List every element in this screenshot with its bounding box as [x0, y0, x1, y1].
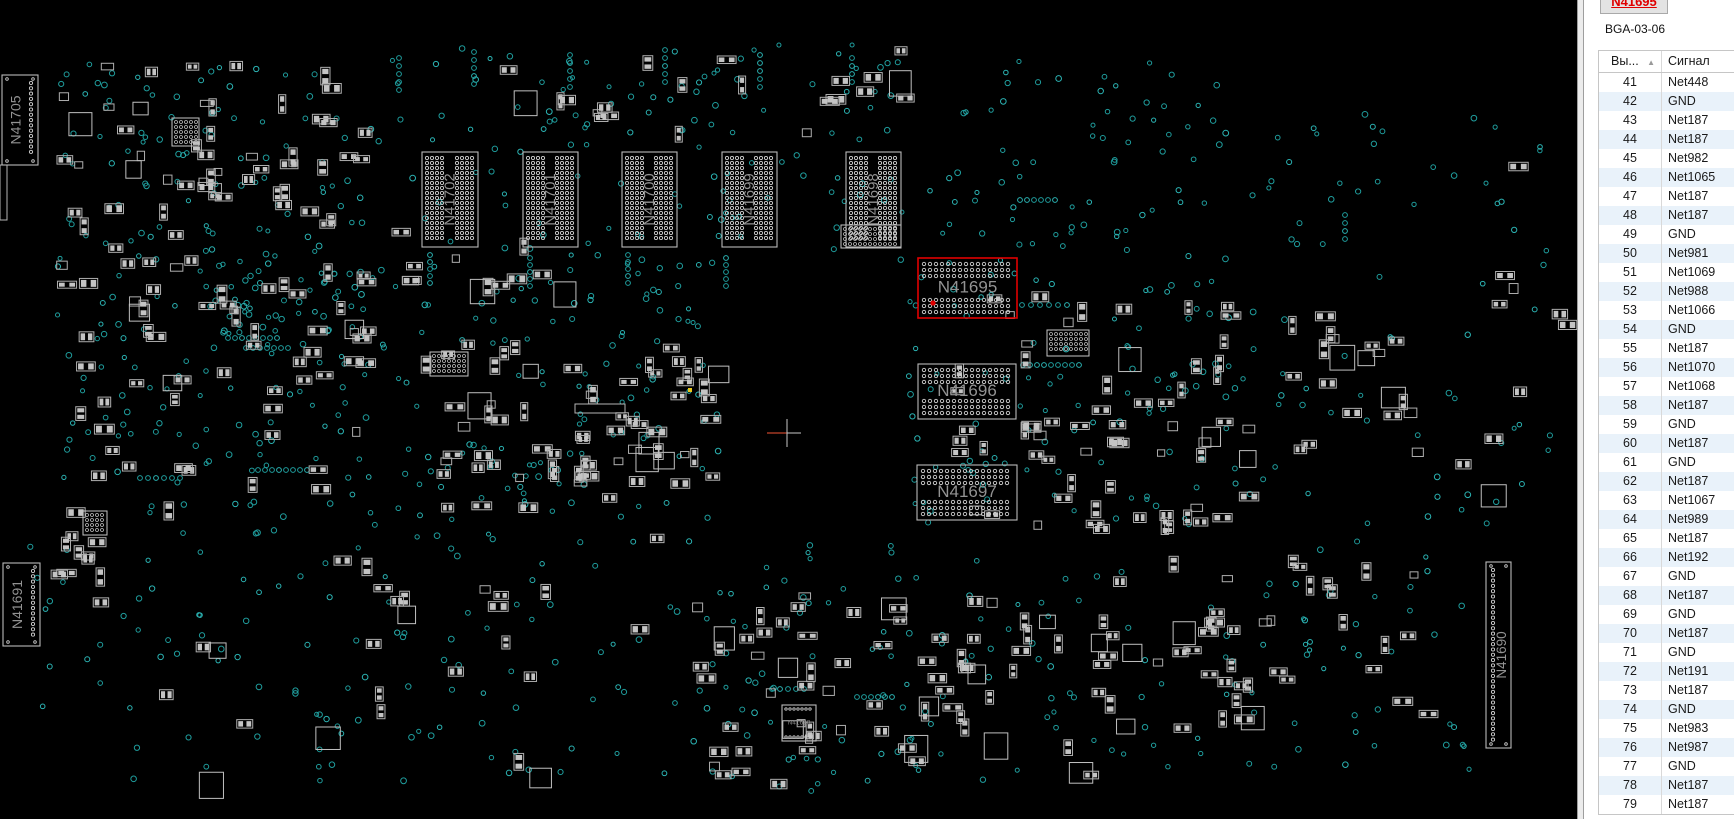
pin-row-73[interactable]: 73Net187 — [1599, 681, 1734, 700]
pin-row-59[interactable]: 59GND — [1599, 415, 1734, 434]
pin-row-66[interactable]: 66Net192 — [1599, 548, 1734, 567]
pin-row-79[interactable]: 79Net187 — [1599, 795, 1734, 814]
svg-text:N41705: N41705 — [8, 95, 24, 144]
board-canvas[interactable]: N41705N41702N41701N41700N41699N41698N416… — [0, 0, 1577, 819]
pin-number: 43 — [1599, 111, 1662, 130]
pin-row-56[interactable]: 56Net1070 — [1599, 358, 1734, 377]
yellow-via — [688, 388, 692, 392]
svg-text:N41697: N41697 — [937, 482, 997, 501]
pcb-render: N41705N41702N41701N41700N41699N41698N416… — [0, 0, 1577, 819]
signal-name: Net988 — [1662, 282, 1734, 301]
pin-number: 69 — [1599, 605, 1662, 624]
pin-number: 63 — [1599, 491, 1662, 510]
pin-number: 74 — [1599, 700, 1662, 719]
signal-name: Net187 — [1662, 206, 1734, 225]
pin-number: 79 — [1599, 795, 1662, 814]
pin-number: 42 — [1599, 92, 1662, 111]
signal-name: Net1067 — [1662, 491, 1734, 510]
passive-component-layer — [0, 47, 1577, 799]
pin-row-65[interactable]: 65Net187 — [1599, 529, 1734, 548]
pin-row-46[interactable]: 46Net1065 — [1599, 168, 1734, 187]
pin-number: 41 — [1599, 73, 1662, 92]
pin-number: 53 — [1599, 301, 1662, 320]
signal-name: Net187 — [1662, 529, 1734, 548]
signal-name: Net187 — [1662, 111, 1734, 130]
pin-number: 62 — [1599, 472, 1662, 491]
pin-row-53[interactable]: 53Net1066 — [1599, 301, 1734, 320]
signal-name: Net1066 — [1662, 301, 1734, 320]
pin-row-54[interactable]: 54GND — [1599, 320, 1734, 339]
pin-row-58[interactable]: 58Net187 — [1599, 396, 1734, 415]
component-N41701[interactable]: N41701 — [523, 152, 578, 247]
signal-name: Net187 — [1662, 624, 1734, 643]
signal-name: GND — [1662, 605, 1734, 624]
svg-text:N41699: N41699 — [741, 173, 758, 226]
signal-name: Net448 — [1662, 73, 1734, 92]
component-N41700[interactable]: N41700 — [622, 152, 677, 247]
pin-row-63[interactable]: 63Net1067 — [1599, 491, 1734, 510]
pin-row-48[interactable]: 48Net187 — [1599, 206, 1734, 225]
pin-number: 73 — [1599, 681, 1662, 700]
signal-name: Net987 — [1662, 738, 1734, 757]
component-N41705[interactable]: N41705 — [2, 75, 38, 165]
component-panel: N41695 BGA-03-06 Вы... ▲ Сигнал 41Net448… — [1584, 0, 1734, 819]
pin-number: 46 — [1599, 168, 1662, 187]
pin-number: 71 — [1599, 643, 1662, 662]
column-header-pin[interactable]: Вы... ▲ — [1599, 51, 1662, 72]
pin-table-header: Вы... ▲ Сигнал — [1599, 51, 1734, 73]
pin-row-45[interactable]: 45Net982 — [1599, 149, 1734, 168]
pin-number: 55 — [1599, 339, 1662, 358]
pin-column-label: Вы... — [1611, 54, 1639, 68]
selected-component-button[interactable]: N41695 — [1600, 0, 1668, 14]
signal-name: GND — [1662, 757, 1734, 776]
svg-text:N41702: N41702 — [442, 173, 459, 226]
pin-number: 49 — [1599, 225, 1662, 244]
signal-name: Net187 — [1662, 681, 1734, 700]
signal-name: Net187 — [1662, 339, 1734, 358]
signal-name: Net187 — [1662, 396, 1734, 415]
signal-name: GND — [1662, 453, 1734, 472]
selected-pin[interactable] — [930, 300, 935, 305]
pin-row-43[interactable]: 43Net187 — [1599, 111, 1734, 130]
pin-number: 76 — [1599, 738, 1662, 757]
pin-row-50[interactable]: 50Net981 — [1599, 244, 1734, 263]
signal-name: Net187 — [1662, 187, 1734, 206]
pin-number: 77 — [1599, 757, 1662, 776]
pin-number: 78 — [1599, 776, 1662, 795]
pin-number: 61 — [1599, 453, 1662, 472]
pin-number: 51 — [1599, 263, 1662, 282]
pin-row-55[interactable]: 55Net187 — [1599, 339, 1734, 358]
signal-name: GND — [1662, 320, 1734, 339]
signal-name: GND — [1662, 92, 1734, 111]
pin-row-57[interactable]: 57Net1068 — [1599, 377, 1734, 396]
pin-number: 65 — [1599, 529, 1662, 548]
svg-text:N41690: N41690 — [1494, 631, 1509, 678]
component-N41691[interactable]: N41691 — [3, 563, 40, 646]
pin-number: 54 — [1599, 320, 1662, 339]
package-label: BGA-03-06 — [1605, 22, 1665, 36]
pin-number: 60 — [1599, 434, 1662, 453]
cursor-crosshair — [767, 419, 801, 447]
component-N41690[interactable]: N41690 — [1486, 562, 1511, 748]
signal-name: Net191 — [1662, 662, 1734, 681]
pin-row-76[interactable]: 76Net987 — [1599, 738, 1734, 757]
pin-row-72[interactable]: 72Net191 — [1599, 662, 1734, 681]
pin-row-60[interactable]: 60Net187 — [1599, 434, 1734, 453]
component-N41697[interactable]: N41697 — [917, 465, 1017, 520]
signal-name: GND — [1662, 225, 1734, 244]
pin-row-78[interactable]: 78Net187 — [1599, 776, 1734, 795]
column-header-signal[interactable]: Сигнал — [1662, 51, 1734, 72]
svg-text:N41695: N41695 — [938, 278, 998, 297]
svg-text:N41698: N41698 — [865, 173, 882, 226]
svg-text:N41691: N41691 — [9, 580, 25, 629]
pin-number: 48 — [1599, 206, 1662, 225]
sort-ascending-icon[interactable]: ▲ — [1647, 52, 1655, 73]
signal-name: Net983 — [1662, 719, 1734, 738]
pin-row-64[interactable]: 64Net989 — [1599, 510, 1734, 529]
signal-name: Net981 — [1662, 244, 1734, 263]
pin-row-77[interactable]: 77GND — [1599, 757, 1734, 776]
signal-name: Net1070 — [1662, 358, 1734, 377]
signal-name: Net187 — [1662, 586, 1734, 605]
pin-table: Вы... ▲ Сигнал 41Net44842GND43Net18744Ne… — [1598, 50, 1734, 815]
pin-number: 47 — [1599, 187, 1662, 206]
svg-text:N41696: N41696 — [937, 381, 997, 400]
signal-name: GND — [1662, 567, 1734, 586]
pin-number: 45 — [1599, 149, 1662, 168]
signal-column-label: Сигнал — [1668, 54, 1710, 68]
svg-text:N41701: N41701 — [542, 173, 559, 226]
signal-name: GND — [1662, 700, 1734, 719]
signal-name: Net187 — [1662, 472, 1734, 491]
signal-name: Net192 — [1662, 548, 1734, 567]
signal-name: Net187 — [1662, 795, 1734, 814]
boardview-window: { "panel": { "selected_component_button"… — [0, 0, 1734, 819]
signal-name: Net187 — [1662, 130, 1734, 149]
signal-name: Net1069 — [1662, 263, 1734, 282]
via-layer — [28, 43, 1553, 793]
pin-row-68[interactable]: 68Net187 — [1599, 586, 1734, 605]
pin-row-75[interactable]: 75Net983 — [1599, 719, 1734, 738]
pin-row-44[interactable]: 44Net187 — [1599, 130, 1734, 149]
pin-number: 68 — [1599, 586, 1662, 605]
pin-row-62[interactable]: 62Net187 — [1599, 472, 1734, 491]
signal-name: Net187 — [1662, 434, 1734, 453]
pin-row-41[interactable]: 41Net448 — [1599, 73, 1734, 92]
pin-row-47[interactable]: 47Net187 — [1599, 187, 1734, 206]
pin-row-70[interactable]: 70Net187 — [1599, 624, 1734, 643]
component-N41698[interactable]: N41698 — [846, 152, 901, 247]
pin-number: 67 — [1599, 567, 1662, 586]
pin-number: 44 — [1599, 130, 1662, 149]
pin-row-52[interactable]: 52Net988 — [1599, 282, 1734, 301]
pin-number: 72 — [1599, 662, 1662, 681]
pin-table-body: 41Net44842GND43Net18744Net18745Net98246N… — [1599, 73, 1734, 814]
component-N41695[interactable]: N41695 — [918, 258, 1017, 318]
pin-row-49[interactable]: 49GND — [1599, 225, 1734, 244]
signal-name: Net982 — [1662, 149, 1734, 168]
panel-splitter[interactable] — [1577, 0, 1584, 819]
pin-number: 52 — [1599, 282, 1662, 301]
pin-row-69[interactable]: 69GND — [1599, 605, 1734, 624]
pin-number: 70 — [1599, 624, 1662, 643]
pin-number: 57 — [1599, 377, 1662, 396]
signal-name: Net1068 — [1662, 377, 1734, 396]
pin-row-71[interactable]: 71GND — [1599, 643, 1734, 662]
signal-name: GND — [1662, 415, 1734, 434]
pin-number: 58 — [1599, 396, 1662, 415]
pin-number: 66 — [1599, 548, 1662, 567]
pin-number: 56 — [1599, 358, 1662, 377]
component-N41702[interactable]: N41702 — [422, 152, 478, 247]
signal-name: Net187 — [1662, 776, 1734, 795]
pin-row-67[interactable]: 67GND — [1599, 567, 1734, 586]
pin-number: 75 — [1599, 719, 1662, 738]
signal-name: GND — [1662, 643, 1734, 662]
pin-row-61[interactable]: 61GND — [1599, 453, 1734, 472]
pin-number: 64 — [1599, 510, 1662, 529]
pin-row-42[interactable]: 42GND — [1599, 92, 1734, 111]
svg-text:N41688: N41688 — [788, 720, 811, 727]
signal-name: Net989 — [1662, 510, 1734, 529]
signal-name: Net1065 — [1662, 168, 1734, 187]
svg-text:N41700: N41700 — [641, 173, 658, 226]
pin-number: 59 — [1599, 415, 1662, 434]
pin-number: 50 — [1599, 244, 1662, 263]
pin-row-51[interactable]: 51Net1069 — [1599, 263, 1734, 282]
pin-row-74[interactable]: 74GND — [1599, 700, 1734, 719]
